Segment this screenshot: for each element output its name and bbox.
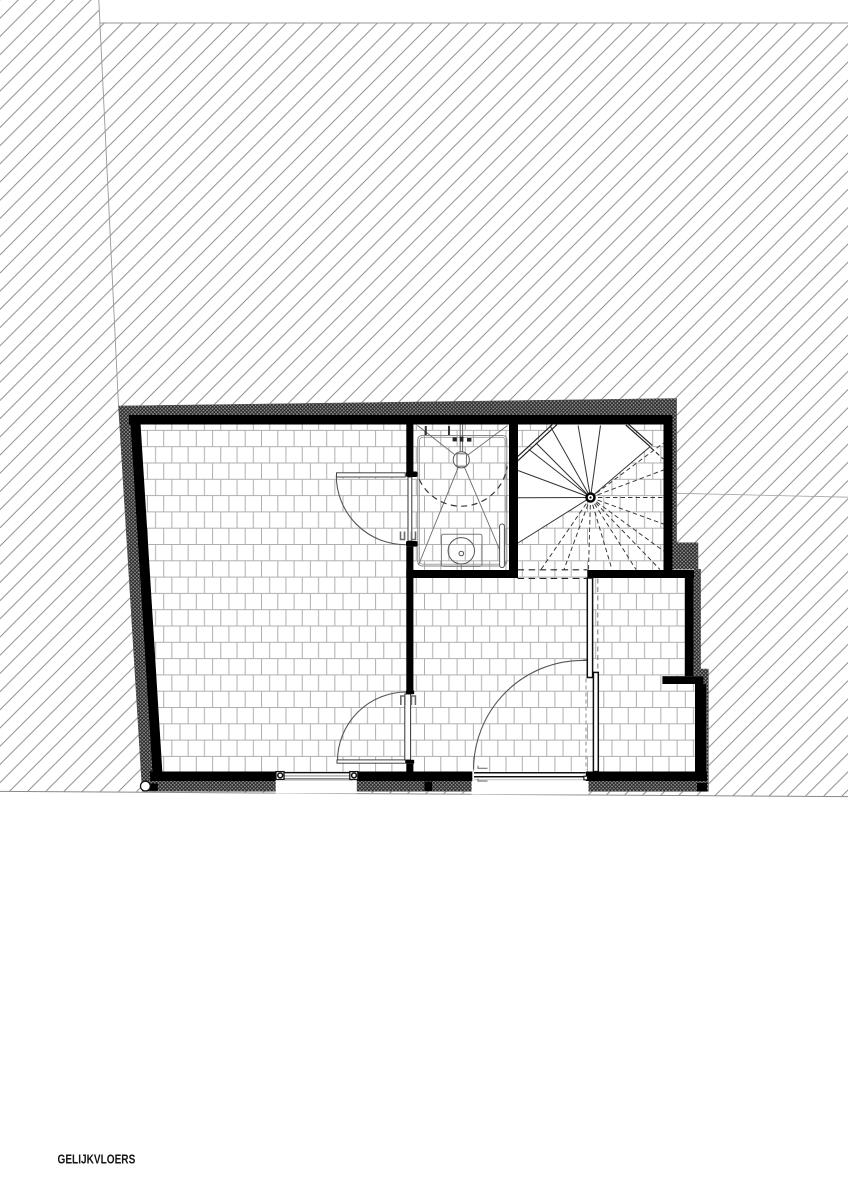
svg-text:GELIJKVLOERS: GELIJKVLOERS: [58, 1153, 136, 1167]
